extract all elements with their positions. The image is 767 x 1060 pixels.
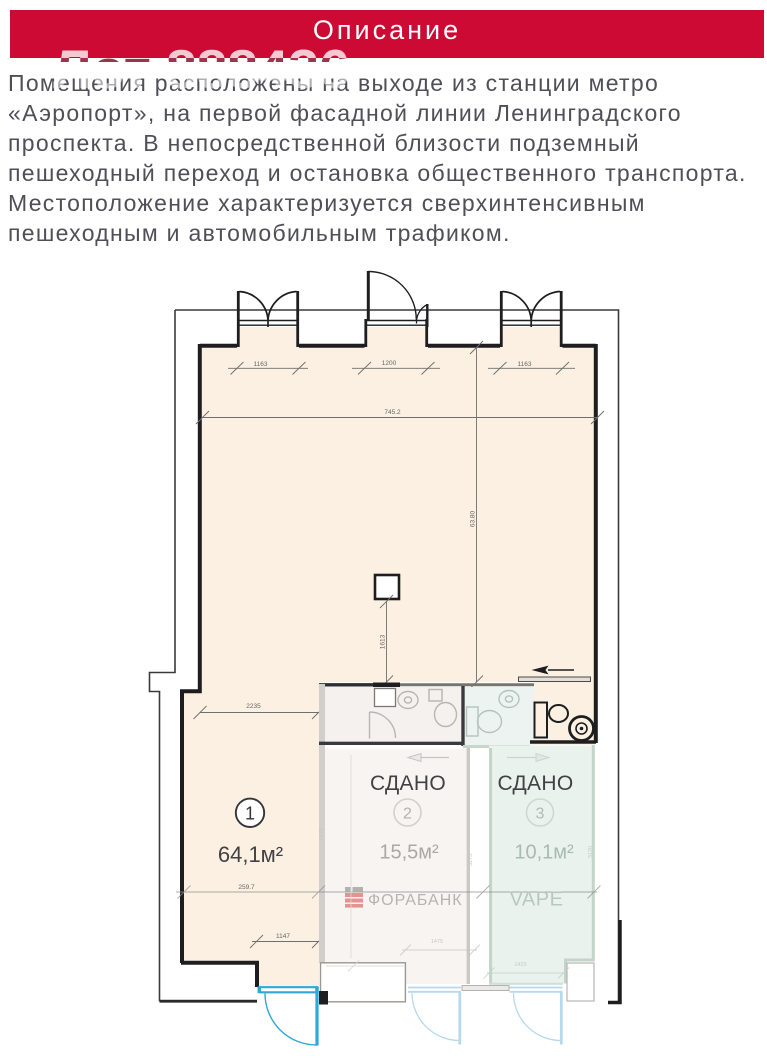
svg-text:63.80: 63.80	[470, 510, 477, 527]
svg-text:3: 3	[536, 806, 545, 823]
svg-text:VAPE: VAPE	[510, 889, 564, 911]
svg-text:745.2: 745.2	[384, 409, 401, 416]
svg-text:5175: 5175	[319, 828, 325, 840]
svg-text:1163: 1163	[254, 361, 268, 368]
svg-text:1613: 1613	[380, 634, 387, 649]
svg-text:3120: 3120	[588, 846, 594, 858]
svg-text:СДАНО: СДАНО	[370, 772, 446, 795]
svg-text:1: 1	[245, 804, 255, 824]
svg-text:3175: 3175	[468, 854, 474, 866]
svg-text:2235: 2235	[246, 703, 261, 710]
svg-text:СДАНО: СДАНО	[498, 772, 574, 795]
svg-text:64,1м²: 64,1м²	[218, 842, 283, 867]
svg-text:1200: 1200	[382, 360, 397, 367]
svg-text:ФОРАБАНК: ФОРАБАНК	[368, 892, 463, 909]
svg-text:10,1м²: 10,1м²	[514, 842, 574, 864]
svg-text:2: 2	[403, 806, 412, 823]
svg-text:15,5м²: 15,5м²	[379, 842, 439, 864]
svg-text:1423: 1423	[514, 962, 526, 968]
svg-text:1475: 1475	[431, 939, 443, 945]
svg-text:1163: 1163	[518, 361, 532, 368]
svg-text:259.7: 259.7	[238, 884, 255, 891]
svg-text:1147: 1147	[276, 933, 290, 940]
